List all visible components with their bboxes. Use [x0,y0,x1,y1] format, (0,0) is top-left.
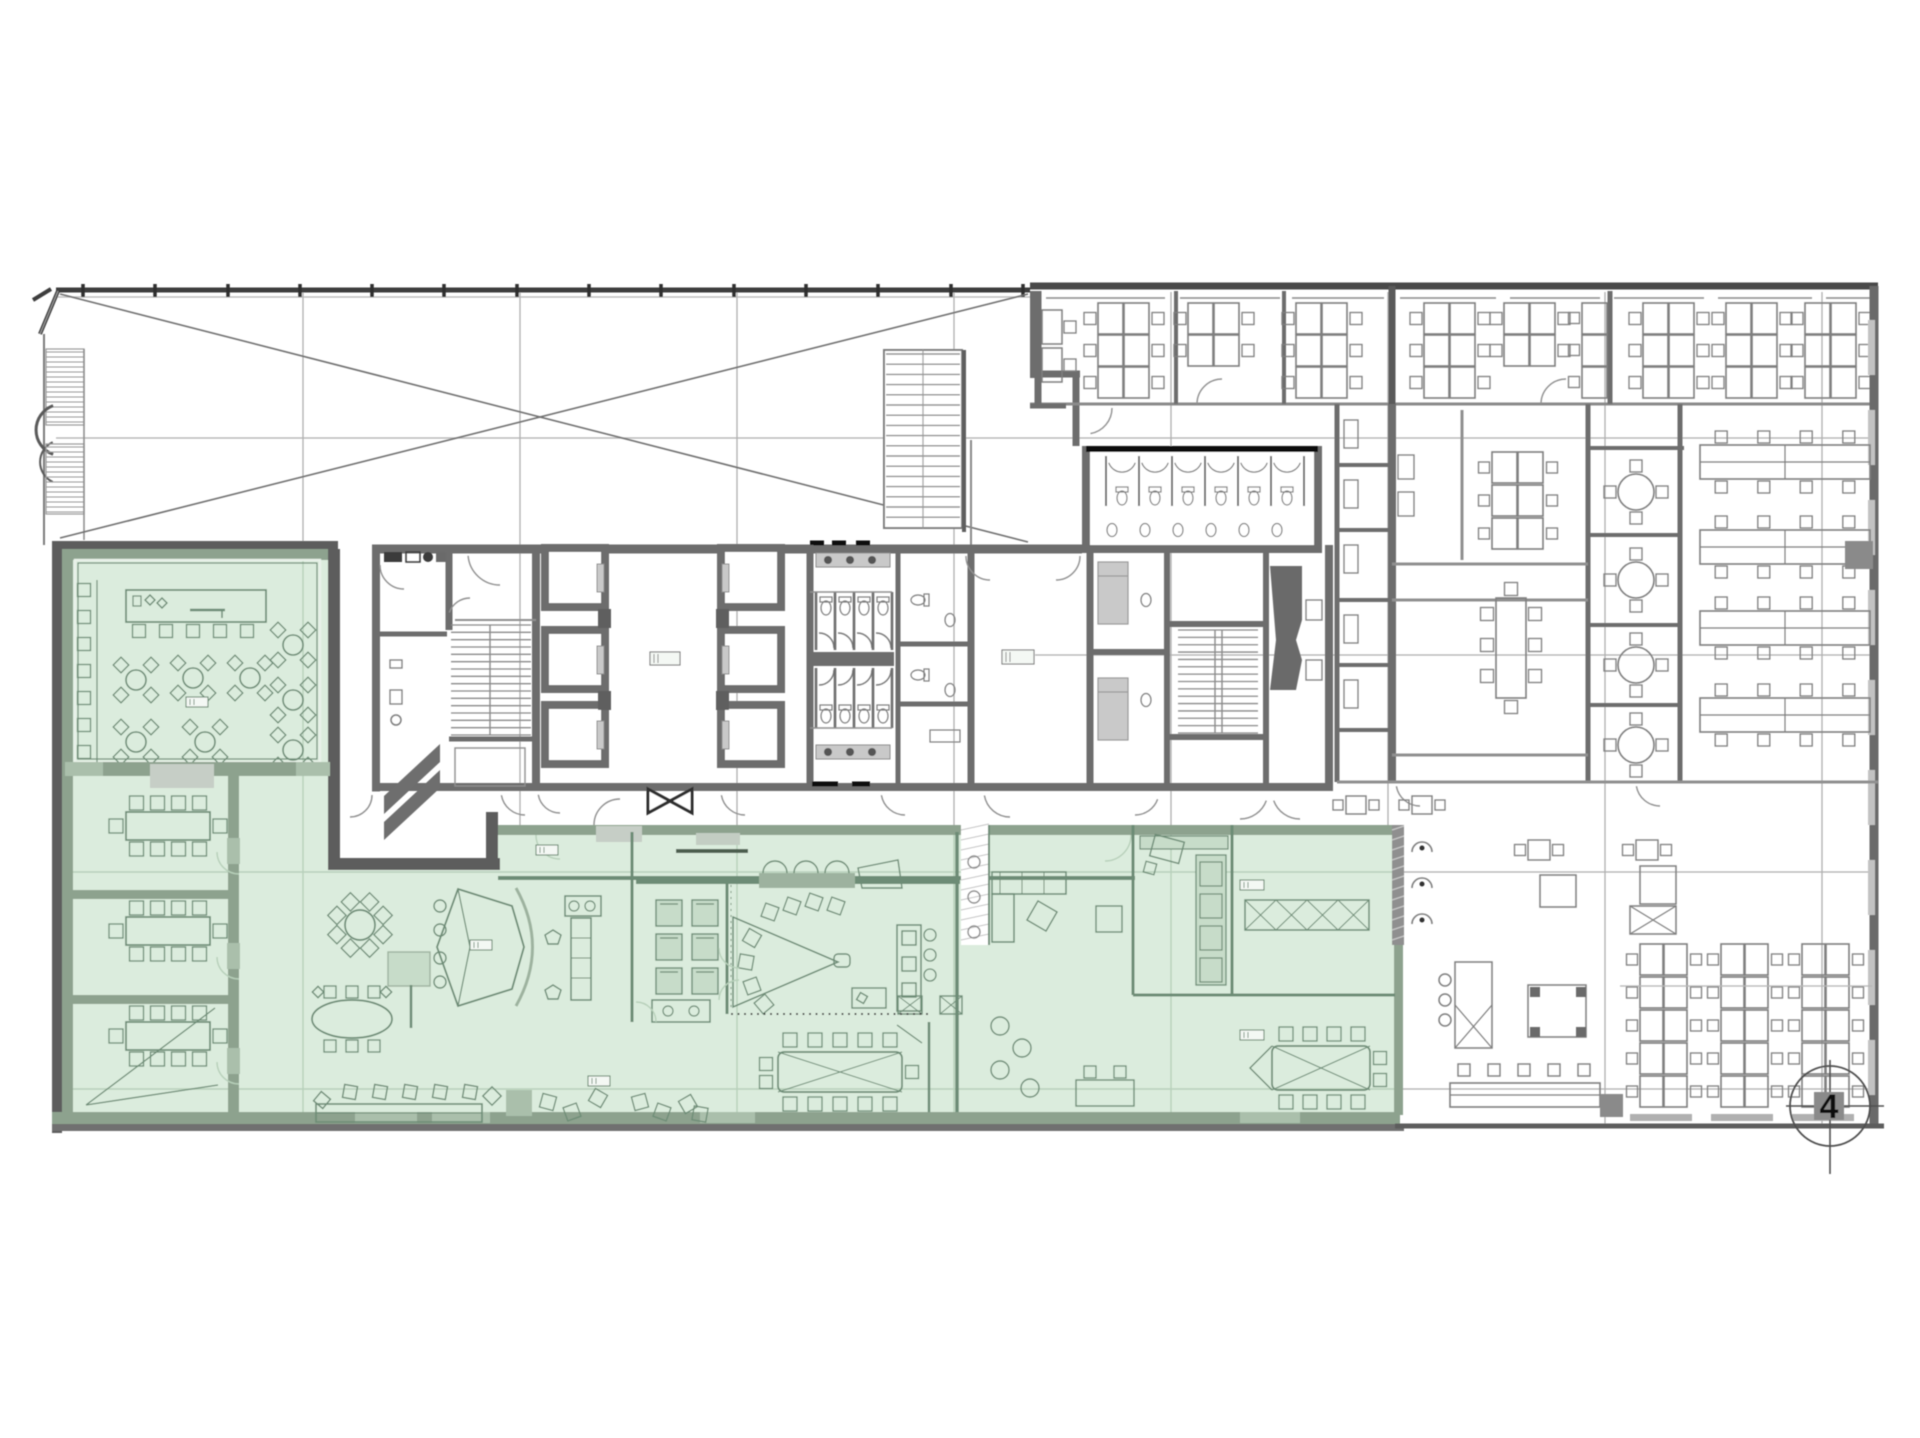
svg-text:4: 4 [1820,1088,1839,1126]
